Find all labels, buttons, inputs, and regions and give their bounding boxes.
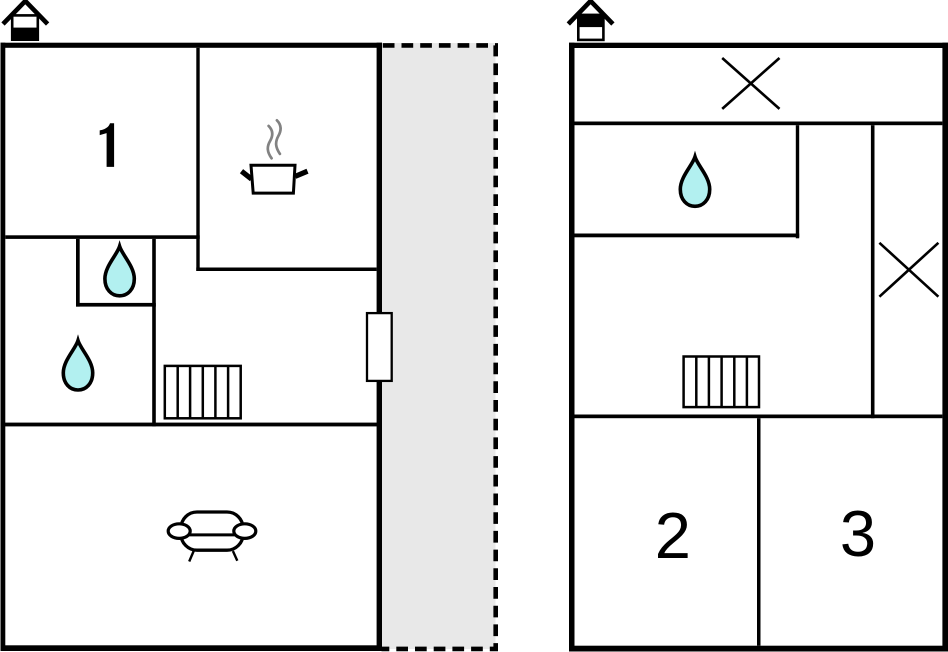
svg-text:3: 3	[840, 497, 876, 570]
svg-text:2: 2	[655, 499, 691, 572]
